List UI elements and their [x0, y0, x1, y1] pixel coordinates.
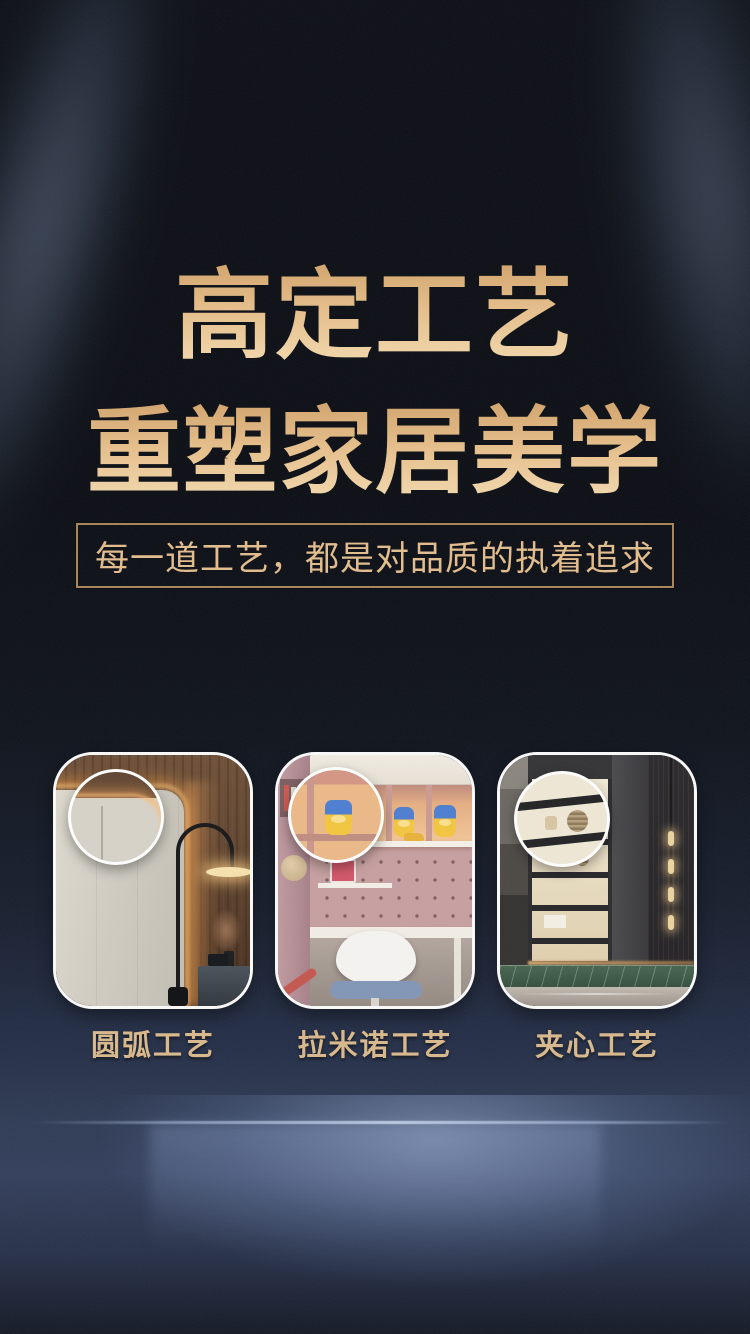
magnified-shelf-divider	[307, 770, 314, 863]
floor-reflection	[520, 993, 670, 995]
craft-label-lamello: 拉米诺工艺	[275, 1022, 475, 1064]
magnified-pikachu-toy	[325, 800, 352, 835]
arc-lamp-light-disc	[206, 867, 252, 877]
pendant-light	[668, 887, 674, 902]
craft-image-sandwich[interactable]	[497, 752, 697, 1009]
magnified-decor-cup	[545, 816, 557, 830]
niche-divider	[426, 785, 432, 841]
magnifier-circle	[288, 767, 384, 863]
pendant-light	[668, 831, 674, 846]
floor	[500, 987, 694, 1006]
wall-shelf	[318, 883, 392, 888]
craft-card-arc[interactable]: 圆弧工艺	[53, 752, 253, 1064]
alarm-clock	[208, 954, 228, 966]
magnified-striped-vase	[567, 810, 588, 832]
craft-label-arc: 圆弧工艺	[53, 1022, 253, 1064]
craft-cards-row: 圆弧工艺	[0, 752, 750, 1064]
toy-car	[404, 833, 424, 841]
pendant-light	[668, 915, 674, 930]
craft-label-sandwich: 夹心工艺	[497, 1022, 697, 1064]
lounge-background	[500, 755, 528, 967]
promo-page: 高定工艺 重塑家居美学 每一道工艺，都是对品质的执着追求	[0, 0, 750, 1334]
headline-line1: 高定工艺	[0, 236, 750, 378]
arc-lamp-pole	[176, 871, 180, 991]
craft-card-sandwich[interactable]: 夹心工艺	[497, 752, 697, 1064]
magnifier-circle	[68, 769, 164, 865]
craft-image-arc[interactable]	[53, 752, 253, 1009]
chair-seat	[330, 981, 422, 999]
book-stack	[544, 915, 566, 928]
magnified-led-corner	[68, 794, 163, 865]
magnified-panel-seam	[101, 806, 103, 865]
nightstand	[198, 966, 250, 1006]
round-cutout	[281, 855, 307, 881]
subtitle-frame: 每一道工艺，都是对品质的执着追求	[76, 523, 674, 588]
chair-pole	[371, 998, 379, 1006]
arc-lamp-base	[168, 987, 188, 1006]
center-pillar	[612, 755, 648, 967]
craft-card-lamello[interactable]: 拉米诺工艺	[275, 752, 475, 1064]
magnified-shelf-board	[291, 834, 384, 841]
pendant-light	[668, 859, 674, 874]
headline-line2: 重塑家居美学	[0, 376, 750, 512]
magnified-shelf-board	[514, 792, 610, 812]
magnified-shelf-board	[514, 830, 610, 850]
craft-image-lamello[interactable]	[275, 752, 475, 1009]
magnifier-circle	[514, 771, 610, 867]
desk-leg	[454, 938, 461, 1006]
subtitle-text: 每一道工艺，都是对品质的执着追求	[95, 531, 655, 580]
under-horizon-glow	[150, 1124, 600, 1274]
green-marble-base	[500, 965, 694, 987]
chair-back	[336, 931, 416, 985]
pikachu-toy	[434, 805, 456, 837]
niche-divider	[386, 785, 392, 841]
